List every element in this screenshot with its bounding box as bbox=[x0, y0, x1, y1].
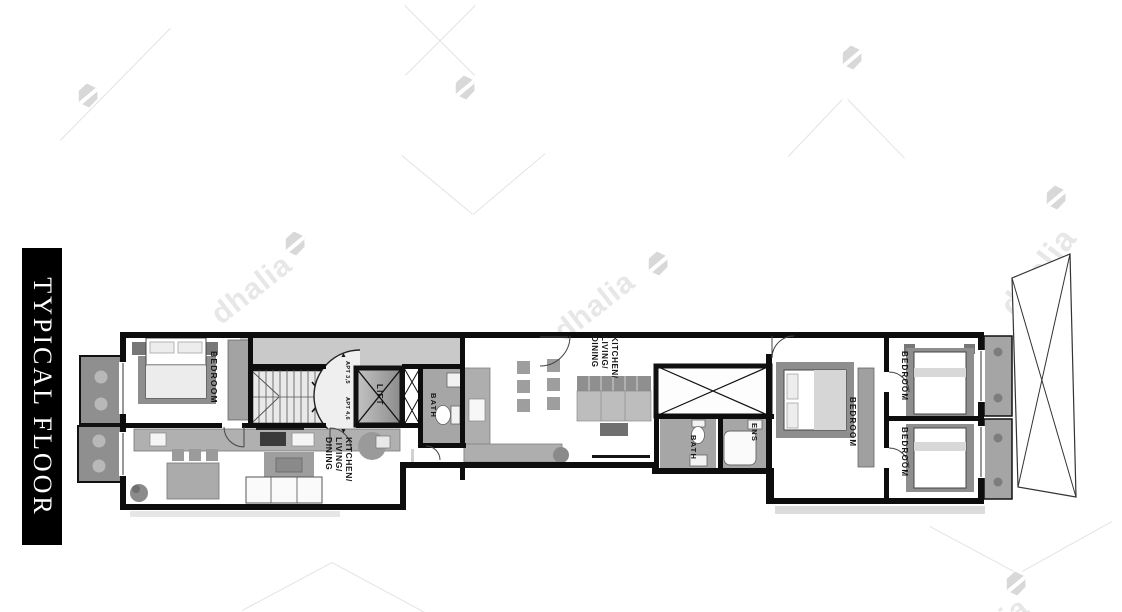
bedroom-1-furniture bbox=[132, 338, 250, 420]
staircase bbox=[252, 370, 324, 424]
apartment2-furniture bbox=[130, 427, 400, 503]
floor-plan-page: dhalia dhalia dhalia dhalia bbox=[0, 0, 1122, 612]
bath-label-2: BATH bbox=[689, 435, 698, 465]
right-balconies bbox=[984, 336, 1012, 499]
bedroom-label-1: BEDROOM bbox=[209, 351, 219, 409]
bath-label-1: BATH bbox=[429, 393, 438, 426]
lift bbox=[356, 368, 420, 425]
lift-label: LIFT bbox=[374, 384, 384, 411]
left-balconies bbox=[78, 356, 122, 482]
apartment3-living-furniture bbox=[464, 359, 651, 463]
bedroom-2-furniture bbox=[776, 362, 874, 467]
kitchen-living-dining-label-1: KITCHEN/ LIVING/ DINING bbox=[589, 336, 619, 378]
shadow-strip bbox=[130, 511, 340, 517]
kitchen-living-dining-label-2: KITCHEN/ LIVING/ DINING bbox=[324, 437, 354, 495]
apt-down-label: APT 4,6 bbox=[345, 397, 352, 428]
bedroom-label-3: BEDROOM bbox=[899, 351, 909, 403]
shadow-strip bbox=[775, 506, 985, 514]
bedroom-label-2: BEDROOM bbox=[847, 397, 857, 449]
void-shaft bbox=[656, 366, 770, 416]
bedroom-3-furniture bbox=[904, 344, 975, 416]
floor-plan-drawing bbox=[0, 0, 1122, 612]
page-title: TYPICAL FLOOR bbox=[23, 256, 57, 538]
down-arrow-icon: ▼ bbox=[340, 428, 347, 435]
lightwell bbox=[1012, 254, 1076, 497]
bedroom-label-4: BEDROOM bbox=[899, 427, 909, 479]
up-arrow-icon: ▲ bbox=[340, 352, 347, 359]
ensuite-label: ENS bbox=[750, 423, 759, 450]
apt-up-label: APT 3,5 bbox=[345, 361, 352, 392]
bedroom-4-furniture bbox=[906, 424, 974, 492]
